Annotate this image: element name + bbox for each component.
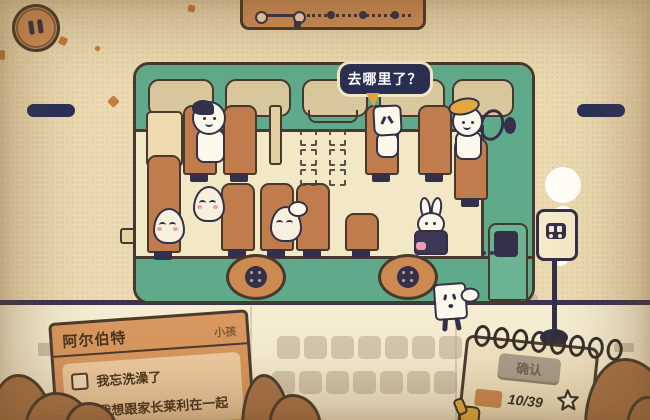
passenger-onion[interactable] (193, 186, 225, 222)
tile (304, 336, 327, 359)
wheel-hub (245, 266, 267, 288)
step-dot (490, 251, 494, 255)
smile-icon (205, 120, 213, 127)
confirm-button-label: 确认 (515, 357, 543, 379)
route-stop-upcoming (359, 11, 367, 19)
game-scene: 去哪里了？ 阿尔伯特 小孩 我忘洗澡了 (0, 0, 650, 420)
passenger-darkhair[interactable] (188, 101, 228, 163)
spiral-ring (492, 326, 510, 350)
notepad: 确认 10/39 (456, 334, 600, 420)
confirm-button[interactable]: 确认 (497, 353, 561, 383)
scribble (387, 116, 393, 124)
bus-seat (223, 105, 257, 175)
step-dot (514, 251, 518, 255)
eye-icon (425, 222, 428, 225)
route-stop-upcoming (391, 11, 399, 19)
tile (439, 336, 462, 359)
drop-zone-cell[interactable] (300, 129, 317, 146)
pause-button[interactable] (9, 1, 63, 55)
mascot-leg (442, 318, 448, 331)
bus (133, 62, 535, 304)
rabbit-bag (416, 242, 426, 250)
hub-dot (402, 271, 405, 274)
bus-wheel (226, 254, 286, 300)
blush (173, 227, 178, 231)
sad-eye-icon (276, 220, 283, 226)
spiral-ring (549, 332, 567, 356)
bus-icon-wheel (549, 234, 553, 238)
mouth-icon (448, 304, 453, 308)
tile (412, 336, 435, 359)
bus-icon (546, 223, 566, 239)
confetti (187, 4, 195, 12)
route-segment-done (266, 14, 294, 17)
confetti (58, 36, 69, 47)
eye-icon (433, 222, 436, 225)
tile (380, 371, 403, 394)
sad-eye-icon (286, 220, 293, 226)
bus-seat (296, 183, 330, 251)
passenger-onion[interactable] (153, 208, 185, 244)
eye-icon (203, 117, 206, 120)
drop-zone-cell[interactable] (329, 149, 346, 166)
scribble (380, 116, 386, 124)
passenger-rabbit[interactable] (411, 197, 451, 251)
route-stop-upcoming (327, 11, 335, 19)
eye-icon (452, 293, 457, 300)
note-face (372, 104, 403, 136)
stop-marker-icon (294, 21, 301, 27)
confetti (94, 45, 101, 52)
hair (192, 100, 214, 115)
rabbit-body (414, 230, 448, 255)
hub-dot (258, 271, 261, 274)
hub-dot (402, 279, 405, 282)
bus-wheel (378, 254, 438, 300)
spiral-ring (511, 328, 529, 352)
confetti (107, 95, 120, 108)
hub-dot (410, 279, 413, 282)
blush (157, 227, 162, 231)
tile (353, 371, 376, 394)
speech-bubble-tail (366, 93, 379, 107)
drop-zone-cell[interactable] (300, 169, 317, 186)
step-dot (498, 251, 502, 255)
passenger-note[interactable] (371, 105, 401, 159)
headlight-icon (504, 117, 516, 134)
smile-icon (463, 123, 471, 130)
handrail (308, 110, 358, 123)
step-dot (506, 251, 510, 255)
tile (331, 336, 354, 359)
tile (385, 336, 408, 359)
speed-line (27, 104, 75, 117)
drop-zone-cell[interactable] (329, 129, 346, 146)
task-card-title: 阿尔伯特 (62, 327, 127, 352)
speech-bubble: 去哪里了？ (340, 64, 430, 94)
drop-zone-cell[interactable] (329, 169, 346, 186)
thumbs-up-icon (451, 396, 484, 420)
paving-tiles-row (272, 371, 457, 394)
tile (358, 336, 381, 359)
tile (407, 371, 430, 394)
pause-icon (37, 19, 44, 34)
eye-icon (471, 121, 474, 124)
bus-icon-window (557, 226, 562, 232)
drop-zone-cell[interactable] (300, 149, 317, 166)
task-option-label: 我想跟家长莱利在一起 (98, 392, 229, 420)
interior-pillar (269, 105, 282, 165)
bus-seat (345, 213, 379, 251)
passenger-head (192, 101, 226, 135)
task-option-label: 我忘洗澡了 (96, 366, 162, 389)
confetti (0, 50, 5, 60)
wheel-hub (397, 266, 419, 288)
bus-icon-wheel (558, 234, 562, 238)
paving-tiles-row (277, 336, 462, 359)
tile (326, 371, 349, 394)
hub-dot (410, 271, 413, 274)
bus-door[interactable] (488, 223, 528, 301)
thought-bubble (288, 201, 308, 217)
star-icon (555, 388, 582, 415)
bus-icon-window (549, 226, 554, 232)
eye-icon (443, 294, 447, 300)
hub-dot (250, 279, 253, 282)
driver-beret[interactable] (446, 98, 484, 160)
tile (434, 371, 457, 394)
blush (197, 205, 202, 209)
spiral-ring (473, 324, 491, 348)
pause-icon (28, 20, 35, 35)
tile (277, 336, 300, 359)
checkbox-icon[interactable] (71, 372, 89, 390)
task-option[interactable]: 我忘洗澡了 (71, 361, 234, 391)
hub-dot (250, 271, 253, 274)
drop-zone[interactable] (300, 129, 358, 183)
ticket-mascot[interactable] (433, 282, 469, 321)
bus-stop-sign (536, 209, 578, 261)
step-dot (482, 251, 486, 255)
blush (213, 205, 218, 209)
speed-line (577, 104, 625, 117)
hub-dot (258, 279, 261, 282)
bus-seat (221, 183, 255, 251)
spiral-ring (568, 334, 586, 358)
speech-bubble-text: 去哪里了？ (348, 69, 423, 89)
task-card-tag: 小孩 (214, 323, 237, 340)
tile (299, 371, 322, 394)
exhaust-puff (545, 167, 581, 203)
progress-counter: 10/39 (507, 391, 544, 411)
spiral-ring (587, 336, 605, 360)
eye-icon (213, 117, 216, 120)
spiral-ring (530, 330, 548, 354)
route-progress-bar (240, 0, 426, 30)
route-stop-done (255, 11, 268, 24)
